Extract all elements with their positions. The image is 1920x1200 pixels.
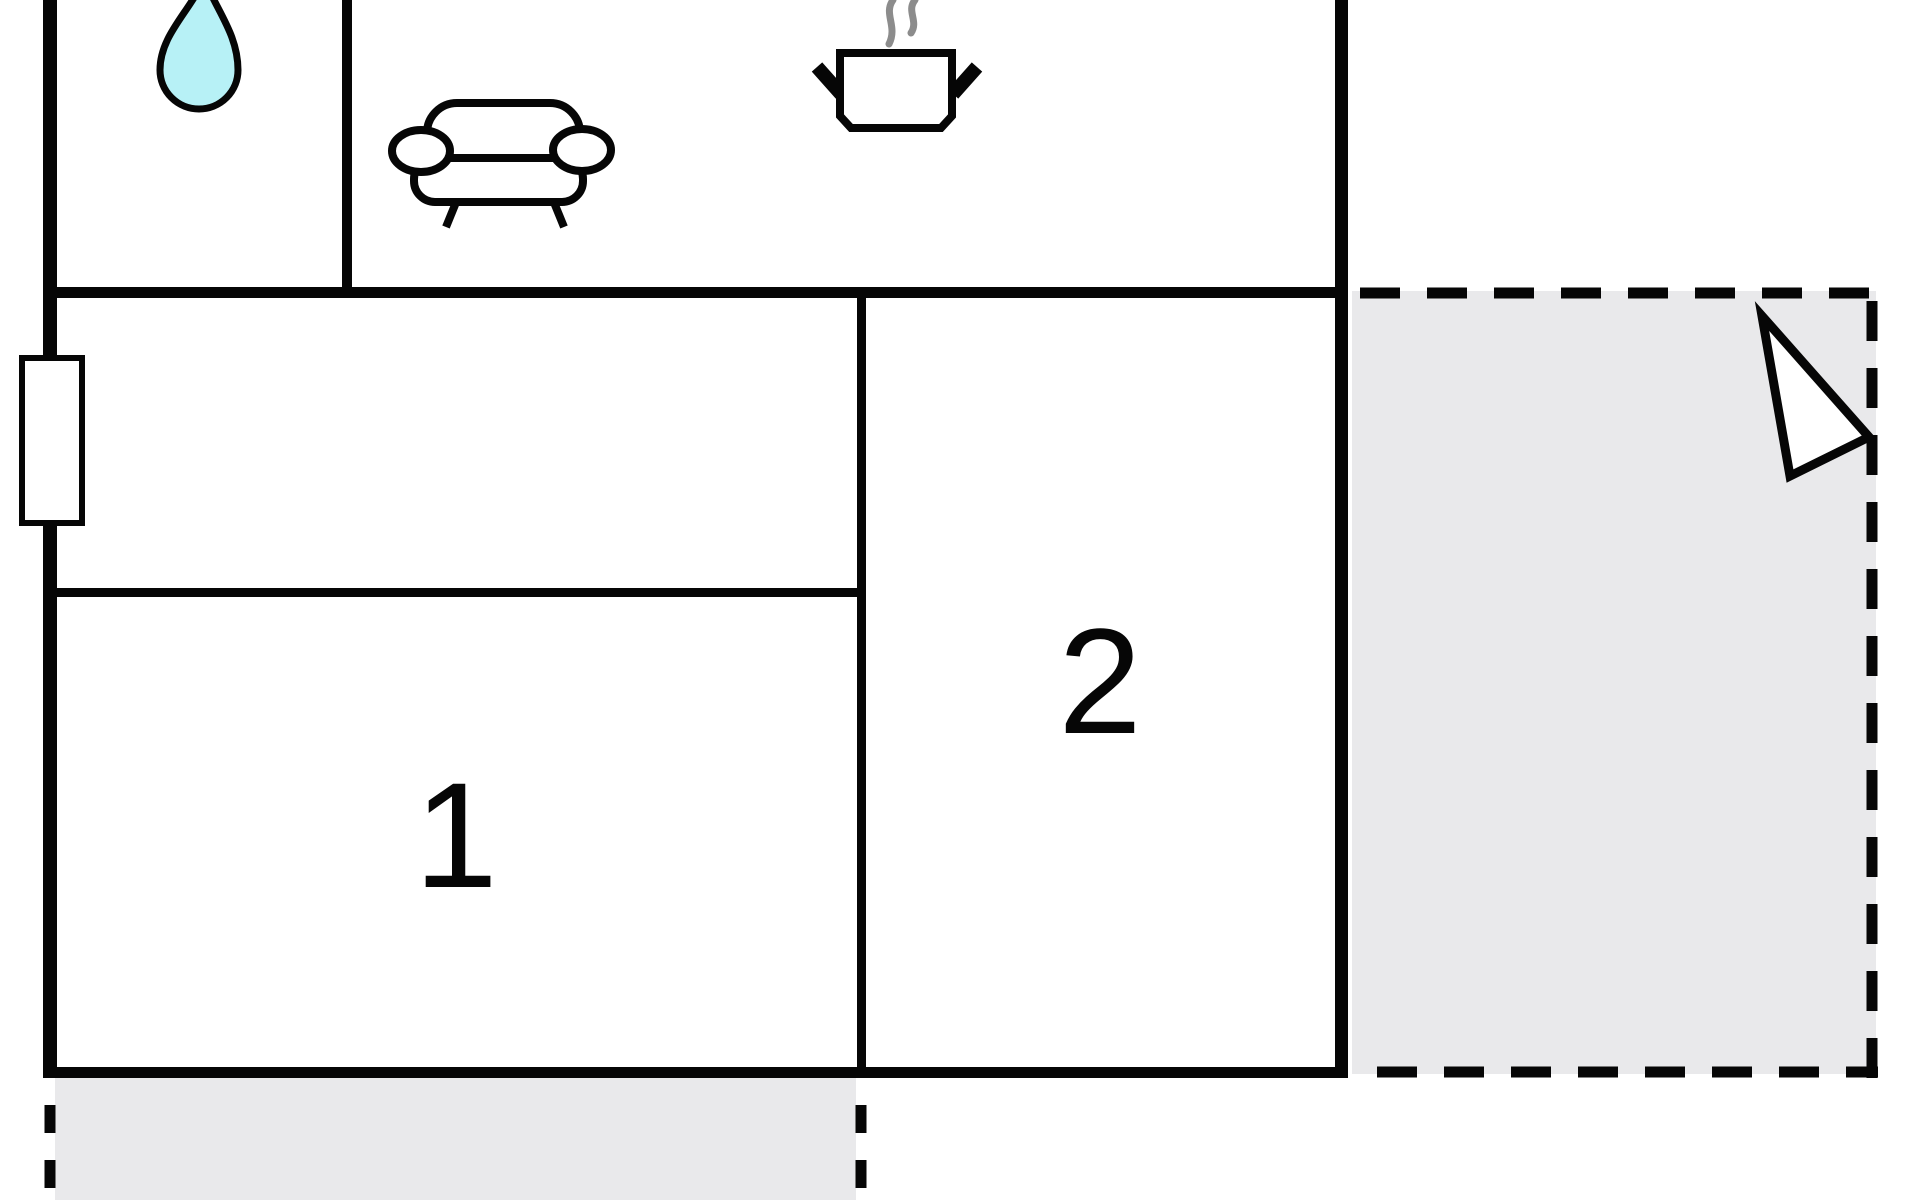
room-1-label: 1 <box>414 751 497 919</box>
pot-handle-right <box>953 67 977 94</box>
right-terrace <box>1352 291 1881 1078</box>
water-drop-icon <box>160 0 238 109</box>
floor-plan-canvas: 1 2 <box>0 0 1920 1200</box>
room-2-label: 2 <box>1058 597 1141 765</box>
outer-wall-right <box>1335 0 1348 1078</box>
pot-body <box>840 53 952 128</box>
outer-wall-bottom <box>43 1067 1348 1078</box>
steam-line-left <box>889 0 893 44</box>
interior-wall-bathroom-divider <box>342 0 352 292</box>
interior-wall-hall-divider <box>50 588 866 597</box>
water-drop-shape <box>160 0 238 109</box>
bottom-terrace <box>50 1078 861 1200</box>
outer-wall-left-upper <box>43 0 57 358</box>
cooking-pot-icon <box>817 0 977 128</box>
steam-line-right <box>911 0 915 33</box>
bottom-terrace-area <box>55 1078 856 1200</box>
walls <box>43 0 1348 1078</box>
sofa-armrest-right <box>553 129 611 171</box>
outer-wall-left-lower <box>43 523 57 1078</box>
interior-wall-top-rooms <box>43 287 1348 298</box>
sofa-icon <box>392 103 611 227</box>
sofa-armrest-left <box>392 130 450 172</box>
interior-wall-room-divider <box>857 292 866 1072</box>
floor-plan: 1 2 <box>0 0 1920 1200</box>
window-symbol <box>22 358 82 523</box>
